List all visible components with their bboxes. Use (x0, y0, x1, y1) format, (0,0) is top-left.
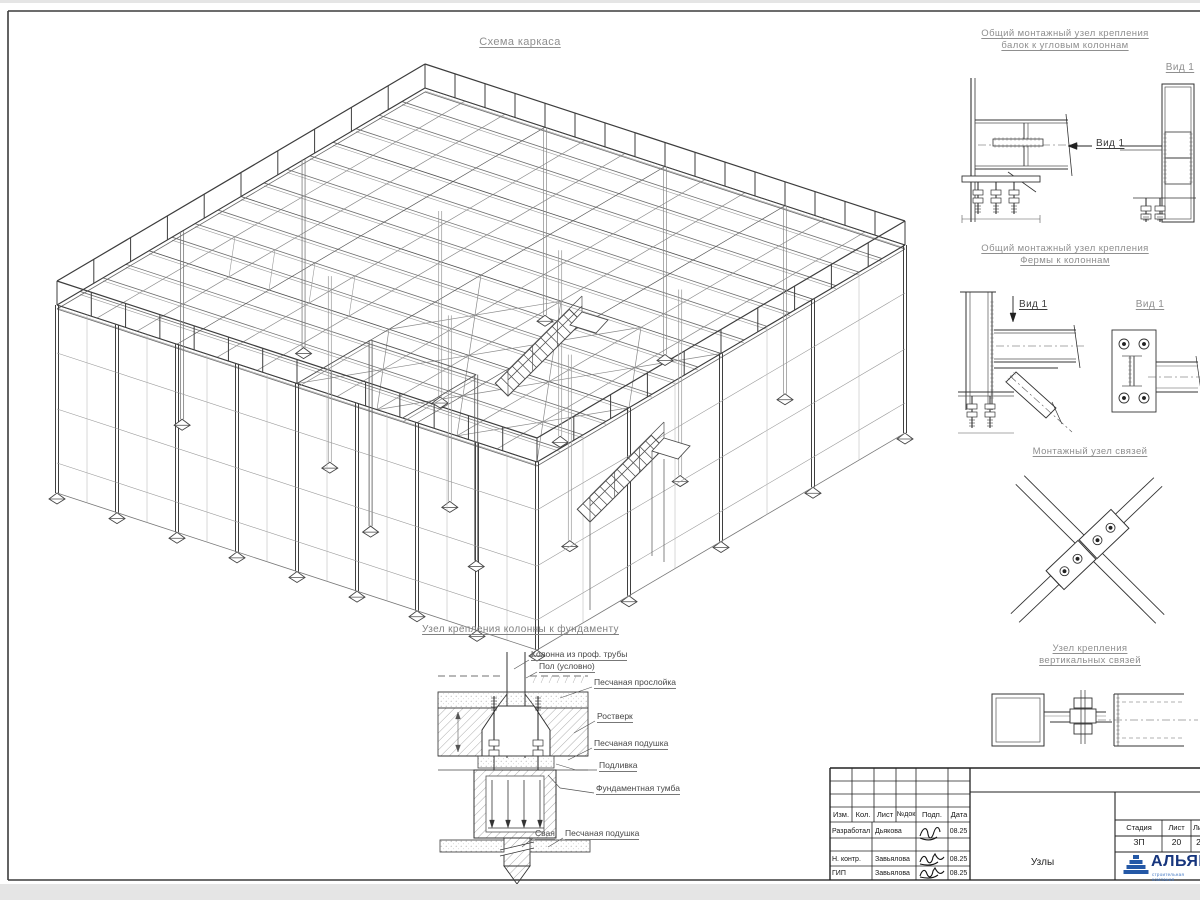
tb-role-developer: Разработал (832, 827, 872, 836)
detail1-view-title: Вид 1 (1150, 62, 1200, 73)
tb-sheets-header: Лист (1193, 823, 1200, 832)
truss-column-detail-drawing (958, 292, 1200, 433)
tb-sheet-value: 20 (1162, 838, 1191, 847)
tb-header-ndok: №док (896, 810, 916, 819)
tb-date-ncontrol: 08.25 (947, 855, 970, 864)
tb-name-developer: Дьякова (875, 827, 916, 836)
detail1-title-line1: Общий монтажный узел крепления (948, 28, 1182, 39)
detail2-title-line1: Общий монтажный узел крепления (948, 243, 1182, 254)
detail2-title-line2: Фермы к колоннам (948, 255, 1182, 266)
tb-date-developer: 08.25 (947, 827, 970, 836)
label-column-profile-tube: Колонна из проф. трубы (531, 650, 627, 661)
main-drawing-title: Схема каркаса (420, 36, 620, 48)
tb-header-kol: Кол. (852, 810, 874, 819)
label-grout: Подливка (599, 761, 637, 772)
tb-name-gip: Завьялова (875, 869, 916, 878)
tb-sheets-value: 2 (1191, 838, 1200, 847)
company-logo-text: АЛЬЯНС (1151, 853, 1200, 871)
detail2-view-arrow-label: Вид 1 (1019, 299, 1047, 310)
label-grillage: Ростверк (597, 712, 633, 723)
label-sand-layer: Песчаная прослойка (594, 678, 676, 689)
beam-corner-detail-drawing (962, 78, 1196, 223)
vertical-braces-detail-drawing (992, 690, 1198, 746)
tb-date-gip: 08.25 (947, 869, 970, 878)
detail4-title-line2: вертикальных связей (1005, 655, 1175, 666)
foundation-title: Узел крепления колонны к фундаменту (413, 624, 628, 635)
detail1-view-arrow-label: Вид 1 (1096, 138, 1124, 149)
foundation-detail-drawing (433, 639, 597, 884)
label-foundation-pedestal: Фундаментная тумба (596, 784, 680, 795)
tb-header-izm: Изм. (830, 810, 852, 819)
label-sand-cushion-2: Песчаная подушка (565, 829, 639, 840)
label-sand-cushion-1: Песчаная подушка (594, 739, 668, 750)
tb-stage-header: Стадия (1116, 823, 1162, 832)
drawing-sheet: Схема каркаса Общий монтажный узел крепл… (0, 0, 1200, 900)
label-pile: Свая (535, 829, 555, 840)
viewer-bottom-margin (0, 884, 1200, 900)
viewer-top-margin (0, 0, 1200, 3)
detail4-title-line1: Узел крепления (1005, 643, 1175, 654)
frame-scheme-drawing (49, 64, 913, 661)
tb-header-data: Дата (948, 810, 970, 819)
tb-stage-value: ЗП (1116, 838, 1162, 847)
detail1-title-line2: балок к угловым колоннам (948, 40, 1182, 51)
tb-doc-title: Узлы (970, 858, 1115, 867)
tb-sheet-header: Лист (1162, 823, 1191, 832)
tb-header-list: Лист (874, 810, 896, 819)
braces-detail-drawing (1008, 468, 1170, 627)
label-floor-conditional: Пол (условно) (539, 662, 595, 673)
tb-role-gip: ГИП (832, 869, 872, 878)
detail2-view-title: Вид 1 (1120, 299, 1180, 310)
detail3-title: Монтажный узел связей (995, 446, 1185, 457)
company-logo-tagline: строительная компания (1152, 872, 1200, 882)
tb-header-podp: Подп. (916, 810, 948, 819)
tb-name-ncontrol: Завьялова (875, 855, 916, 864)
tb-role-ncontrol: Н. контр. (832, 855, 872, 864)
